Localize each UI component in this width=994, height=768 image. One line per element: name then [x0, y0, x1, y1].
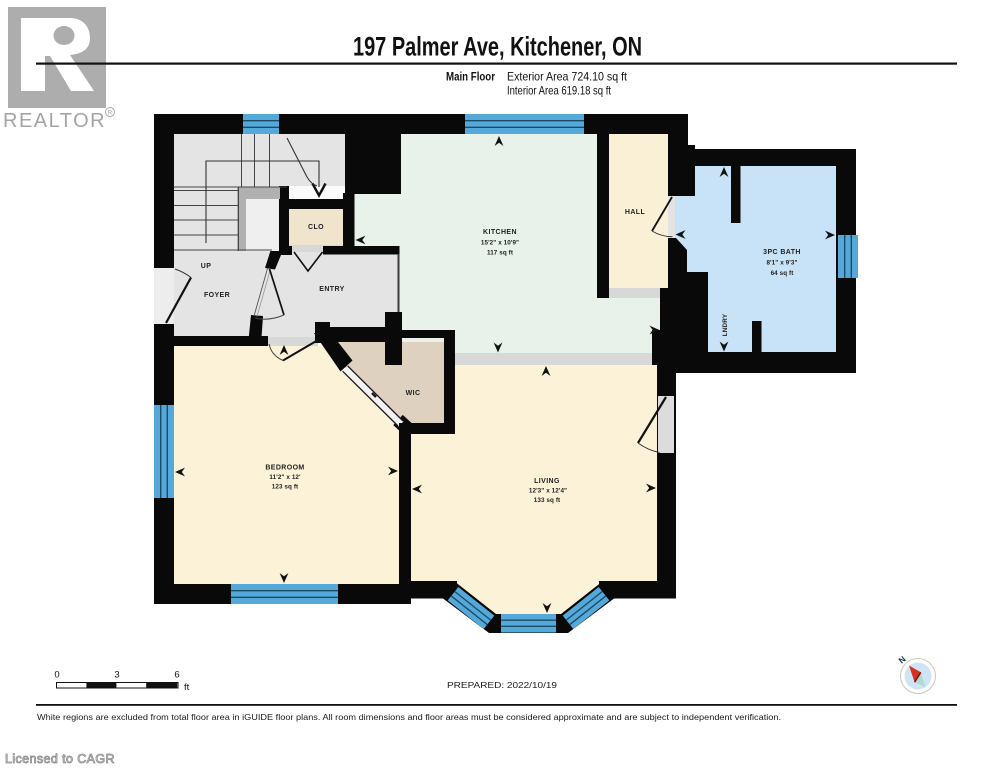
svg-text:Licensed to CAGR: Licensed to CAGR [5, 752, 115, 766]
svg-text:White regions are excluded fro: White regions are excluded from total fl… [37, 712, 781, 722]
svg-text:64 sq ft: 64 sq ft [771, 270, 795, 277]
svg-text:Main Floor: Main Floor [446, 71, 495, 84]
svg-text:197 Palmer Ave, Kitchener, ON: 197 Palmer Ave, Kitchener, ON [353, 32, 642, 62]
svg-text:UP: UP [201, 263, 212, 270]
svg-text:8'1" x 9'3": 8'1" x 9'3" [766, 260, 797, 267]
svg-text:6: 6 [174, 670, 179, 681]
svg-text:0: 0 [54, 670, 59, 681]
svg-text:ft: ft [184, 682, 190, 693]
svg-text:Exterior Area 724.10 sq ft: Exterior Area 724.10 sq ft [507, 71, 628, 84]
svg-text:133 sq ft: 133 sq ft [534, 497, 561, 504]
svg-text:117 sq ft: 117 sq ft [487, 250, 514, 257]
svg-text:15'2" x 10'9": 15'2" x 10'9" [481, 240, 519, 247]
svg-text:REALTOR: REALTOR [3, 110, 106, 132]
svg-text:3PC BATH: 3PC BATH [763, 249, 801, 256]
svg-text:WIC: WIC [406, 390, 421, 397]
svg-text:Interior Area 619.18 sq ft: Interior Area 619.18 sq ft [507, 85, 612, 98]
svg-text:R: R [108, 111, 113, 117]
svg-text:CLO: CLO [308, 224, 324, 231]
svg-text:11'2" x 12': 11'2" x 12' [269, 474, 301, 481]
svg-text:LIVING: LIVING [534, 478, 560, 485]
svg-text:ENTRY: ENTRY [319, 286, 344, 293]
svg-text:12'3" x 12'4": 12'3" x 12'4" [529, 488, 567, 495]
svg-text:123 sq ft: 123 sq ft [272, 484, 299, 491]
svg-text:3: 3 [114, 670, 119, 681]
svg-text:LNDRY: LNDRY [722, 313, 729, 336]
svg-text:KITCHEN: KITCHEN [483, 229, 517, 236]
svg-text:FOYER: FOYER [204, 292, 230, 299]
svg-text:BEDROOM: BEDROOM [265, 465, 304, 472]
svg-text:PREPARED: 2022/10/19: PREPARED: 2022/10/19 [447, 681, 558, 690]
svg-text:HALL: HALL [625, 209, 646, 216]
